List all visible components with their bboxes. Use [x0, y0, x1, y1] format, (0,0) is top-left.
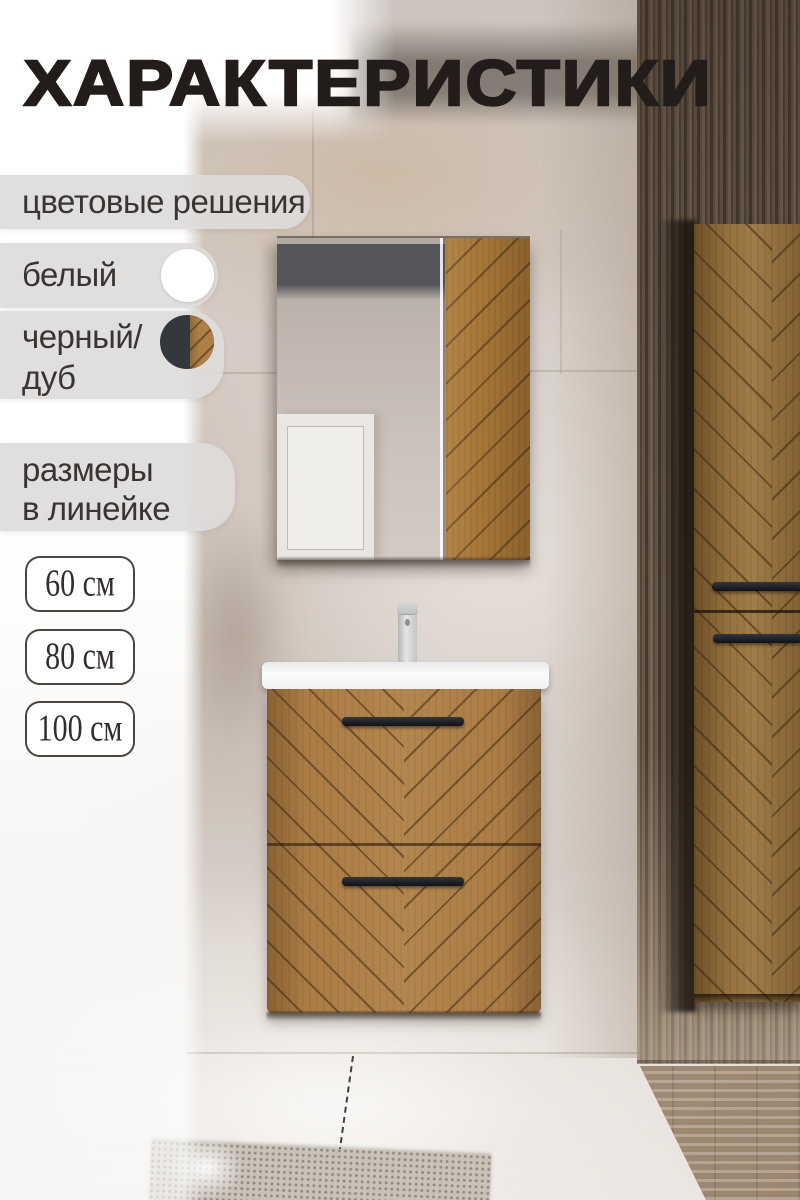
faucet — [398, 602, 417, 666]
chevron-pattern — [267, 689, 404, 1013]
mirror — [277, 238, 445, 560]
mirror-reflection-door — [277, 414, 374, 560]
mirror-cabinet — [277, 238, 530, 560]
size-chip-100-label: 100 см — [38, 707, 123, 751]
mirror-cabinet-wood-door — [446, 238, 530, 560]
mirror-reflection-dark-band — [277, 244, 445, 300]
size-chip-80[interactable]: 80 см — [25, 629, 135, 685]
size-chip-100[interactable]: 100 см — [25, 701, 135, 757]
washbasin-countertop — [262, 662, 549, 689]
slat-wall-base — [637, 1060, 800, 1063]
size-chip-80-label: 80 см — [45, 635, 115, 679]
chevron-pattern — [772, 224, 800, 1002]
chevron-pattern — [694, 224, 772, 1002]
white-swatch-icon[interactable] — [161, 249, 214, 302]
mirror-reflection-door-panel — [287, 426, 364, 550]
faucet-logo-dot — [405, 619, 410, 626]
mirror-cabinet-shadow — [277, 558, 530, 568]
tall-cabinet-door-seam — [694, 610, 800, 613]
tall-cabinet — [694, 224, 800, 1002]
product-infographic: ХАРАКТЕРИСТИКИ цветовые решения белый че… — [0, 0, 800, 1200]
color-section-text: цветовые решения — [22, 183, 305, 220]
black-oak-swatch-icon[interactable] — [160, 315, 214, 369]
chevron-pattern — [404, 689, 541, 1013]
vanity-cabinet — [267, 689, 541, 1013]
sizes-label-line1: размеры — [22, 450, 235, 489]
sizes-label-line2: в линейке — [22, 489, 235, 528]
color-section-label: цветовые решения — [0, 175, 310, 229]
page-title: ХАРАКТЕРИСТИКИ — [24, 46, 713, 120]
sizes-section-label: размеры в линейке — [0, 443, 235, 531]
wall-shading — [540, 0, 640, 1058]
tall-cabinet-handle — [713, 634, 800, 643]
size-chip-60-label: 60 см — [45, 562, 115, 606]
faucet-cap — [397, 602, 418, 615]
oak-half-swatch — [190, 315, 214, 369]
white-option-label: белый — [22, 256, 117, 293]
size-chip-60[interactable]: 60 см — [25, 556, 135, 612]
drawer-handle — [342, 717, 464, 726]
tall-cabinet-underside — [694, 994, 800, 1002]
tall-cabinet-handle — [712, 582, 800, 591]
drawer-seam — [267, 843, 541, 846]
drawer-handle — [342, 877, 464, 886]
tall-cabinet-shadow — [658, 220, 696, 1012]
